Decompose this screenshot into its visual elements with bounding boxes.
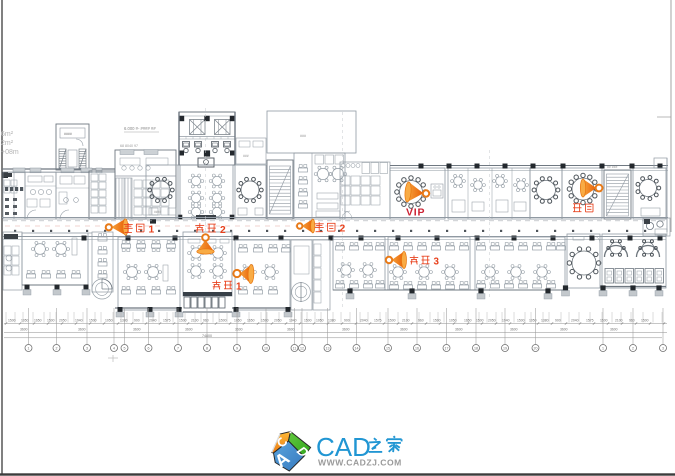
svg-text:1575: 1575: [163, 319, 171, 323]
svg-text:1575: 1575: [586, 319, 594, 323]
svg-text:900: 900: [134, 319, 140, 323]
svg-text:17: 17: [445, 347, 449, 351]
svg-text:13: 13: [326, 347, 330, 351]
svg-text:1500: 1500: [89, 319, 97, 323]
svg-text:1050: 1050: [21, 319, 29, 323]
svg-text:1500: 1500: [47, 319, 55, 323]
svg-text:2040: 2040: [360, 319, 368, 323]
svg-text:1: 1: [28, 347, 30, 351]
svg-text:960: 960: [418, 319, 424, 323]
svg-text:1500: 1500: [219, 319, 227, 323]
svg-text:1: 1: [236, 282, 242, 293]
svg-text:1650: 1650: [464, 319, 472, 323]
svg-text:1380: 1380: [120, 319, 128, 323]
svg-text:900: 900: [344, 319, 350, 323]
svg-text:12: 12: [300, 347, 304, 351]
svg-text:###: ###: [243, 154, 249, 158]
svg-text:1: 1: [602, 347, 604, 351]
svg-text:2: 2: [340, 224, 346, 235]
svg-text:10: 10: [264, 347, 268, 351]
svg-text:2100: 2100: [615, 319, 623, 323]
svg-text:1050: 1050: [449, 319, 457, 323]
svg-text:3600: 3600: [185, 328, 193, 332]
svg-text:2050: 2050: [274, 319, 282, 323]
svg-text:3600: 3600: [235, 328, 243, 332]
svg-text:4: 4: [113, 347, 115, 351]
svg-text:3600: 3600: [342, 328, 350, 332]
svg-text:1: 1: [149, 225, 155, 236]
svg-text:6.000 #- #### ##: 6.000 #- #### ##: [124, 126, 156, 131]
svg-text:####: ####: [154, 210, 161, 214]
svg-text:1050: 1050: [234, 319, 242, 323]
svg-text:1500: 1500: [517, 319, 525, 323]
svg-text:1380: 1380: [328, 319, 336, 323]
svg-text:1500: 1500: [433, 319, 441, 323]
svg-text:16: 16: [415, 347, 419, 351]
svg-text:2m²: 2m²: [1, 140, 14, 147]
svg-text:2100: 2100: [402, 319, 410, 323]
svg-text:3: 3: [434, 257, 440, 268]
svg-text:1650: 1650: [247, 319, 255, 323]
svg-text:2: 2: [56, 347, 58, 351]
svg-text:###: ###: [300, 134, 306, 138]
svg-text:1500: 1500: [8, 319, 16, 323]
svg-text:3600: 3600: [455, 328, 463, 332]
svg-text:1575: 1575: [374, 319, 382, 323]
svg-text:1380: 1380: [541, 319, 549, 323]
svg-text:960: 960: [203, 319, 209, 323]
svg-text:9: 9: [236, 347, 238, 351]
svg-text:1500: 1500: [641, 319, 649, 323]
svg-text:1940: 1940: [502, 319, 510, 323]
svg-text:900: 900: [555, 319, 561, 323]
svg-text:1940: 1940: [75, 319, 83, 323]
svg-text:3: 3: [86, 347, 88, 351]
svg-text:1500: 1500: [261, 319, 269, 323]
svg-text:14: 14: [355, 347, 359, 351]
svg-text:+08m: +08m: [1, 149, 19, 156]
svg-text:7: 7: [177, 347, 179, 351]
svg-text:2040: 2040: [149, 319, 157, 323]
svg-text:5: 5: [124, 347, 126, 351]
svg-text:1050: 1050: [316, 319, 324, 323]
svg-text:WWW.CADZJ.COM: WWW.CADZJ.COM: [318, 458, 402, 468]
svg-text:2050: 2050: [59, 319, 67, 323]
svg-text:8: 8: [206, 347, 208, 351]
svg-text:3600: 3600: [133, 328, 141, 332]
svg-text:1650: 1650: [34, 319, 42, 323]
svg-text:3600: 3600: [510, 328, 518, 332]
svg-text:2100: 2100: [191, 319, 199, 323]
svg-text:1500: 1500: [388, 319, 396, 323]
svg-text:960: 960: [629, 319, 635, 323]
svg-text:15: 15: [386, 347, 390, 351]
svg-text:3600: 3600: [400, 328, 408, 332]
svg-text:18: 18: [474, 347, 478, 351]
svg-text:2: 2: [220, 225, 226, 236]
svg-text:3600: 3600: [20, 328, 28, 332]
svg-text:1500: 1500: [179, 319, 187, 323]
svg-text:1500: 1500: [304, 319, 312, 323]
svg-text:VIP: VIP: [406, 207, 425, 219]
svg-text:3600: 3600: [610, 328, 618, 332]
svg-text:3: 3: [662, 347, 664, 351]
svg-text:1500: 1500: [600, 319, 608, 323]
svg-text:2050: 2050: [488, 319, 496, 323]
svg-text:19: 19: [503, 347, 507, 351]
svg-text:1050: 1050: [105, 319, 113, 323]
svg-text:1500: 1500: [476, 319, 484, 323]
svg-text:68 8040 97: 68 8040 97: [120, 144, 138, 148]
svg-text:6: 6: [148, 347, 150, 351]
svg-text:1940: 1940: [289, 319, 297, 323]
svg-text:3600: 3600: [78, 328, 86, 332]
svg-text:2: 2: [632, 347, 634, 351]
svg-text:3600: 3600: [560, 328, 568, 332]
svg-text:6m²: 6m²: [1, 131, 14, 138]
svg-text:3600: 3600: [287, 328, 295, 332]
svg-text:2040: 2040: [571, 319, 579, 323]
svg-text:20: 20: [534, 347, 538, 351]
svg-text:11: 11: [293, 347, 297, 351]
svg-text:####: ####: [64, 132, 72, 136]
